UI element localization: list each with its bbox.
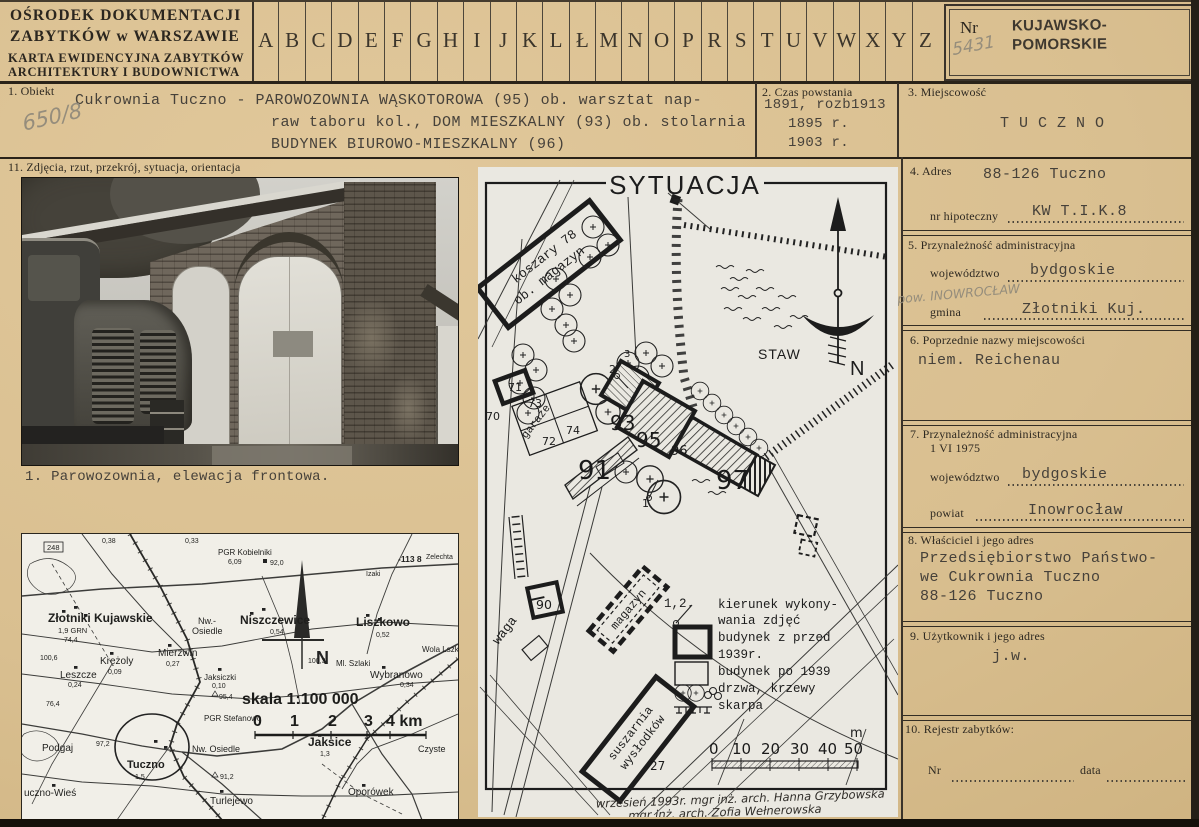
scale-10: 10 <box>732 740 751 758</box>
scan-edge-right <box>1191 0 1199 827</box>
photograph-locomotive-shed <box>22 178 458 465</box>
s8-owner-line2: we Cukrownia Tuczno <box>920 569 1101 586</box>
s10-dotted-line2 <box>1107 780 1185 782</box>
s6-label: 6. Poprzednie nazwy miejscowości <box>910 333 1085 348</box>
s4-address-value: 88-126 Tuczno <box>983 166 1107 183</box>
s5-dotted-line2 <box>984 318 1184 320</box>
legend-line: wania zdjęć <box>718 614 801 628</box>
s7-dotted-line2 <box>976 519 1184 521</box>
scale-50: 50 <box>844 740 863 758</box>
s3-label: 3. Miejscowość <box>908 85 986 100</box>
alphabet-letter: E <box>358 0 384 81</box>
s8-label: 8. Właściciel i jego adres <box>908 533 1034 548</box>
alphabet-letter: F <box>384 0 410 81</box>
spot-height: 1,5 <box>135 774 145 781</box>
place-jaksiczki: Jaksiczki <box>204 673 236 682</box>
building-71: 71 <box>508 381 522 394</box>
s3-town-value: T U C Z N O <box>1000 115 1105 132</box>
north-label: N <box>850 358 864 380</box>
building-90: 90 <box>536 597 552 612</box>
topographic-map: N skala 1:100 000 0 1 2 3 4 km Złotniki … <box>22 534 458 820</box>
place-mierzwin: Mierzwin <box>158 648 197 659</box>
building-70: 70 <box>486 410 500 423</box>
place-ml-szlaki: Ml. Szlaki <box>336 659 370 668</box>
place-podgaj: Podgaj <box>42 743 73 754</box>
s7-f1-label: województwo <box>930 470 1000 485</box>
s5-dotted-line1 <box>1008 280 1184 282</box>
scale-unit: m <box>850 726 863 741</box>
alphabet-letter: O <box>648 0 674 81</box>
spot-height: 100,6 <box>40 655 58 662</box>
s8-owner-line3: 88-126 Tuczno <box>920 588 1044 605</box>
ground-light-patch <box>212 446 352 465</box>
s10-label: 10. Rejestr zabytków: <box>905 722 1014 737</box>
spot-height: 97,2 <box>96 741 110 748</box>
map-scale-2: 2 <box>328 713 337 730</box>
alphabet-letter: P <box>674 0 700 81</box>
s4-field-label: nr hipoteczny <box>930 209 998 224</box>
building-91: 91 <box>578 456 611 486</box>
building-96: 96 <box>671 444 688 459</box>
s7-f1-value: bydgoskie <box>1022 466 1108 483</box>
s11-label: 11. Zdjęcia, rzut, przekrój, sytuacja, o… <box>8 160 241 175</box>
s8-owner-line1: Przedsiębiorstwo Państwo- <box>920 550 1158 567</box>
cab-window <box>28 255 80 301</box>
s10-dotted-line1 <box>952 780 1074 782</box>
spot-height: -113 8 <box>398 554 422 564</box>
alphabet-letter: I <box>463 0 489 81</box>
s4-dotted-line <box>1008 221 1184 223</box>
hood-vent <box>92 328 134 424</box>
s4-s5-separator <box>903 230 1199 236</box>
door-sign <box>273 331 313 357</box>
s7-label: 7. Przynależność administracyjna <box>910 427 1077 442</box>
s4-field-value: KW T.I.K.8 <box>1032 203 1127 220</box>
map-scale-3: 3 <box>364 713 373 730</box>
alphabet-letter: R <box>701 0 727 81</box>
spot-height: 6,09 <box>228 559 242 566</box>
legend-line: drzwa, krzewy <box>718 682 816 696</box>
legend-line: 1939r. <box>718 648 763 662</box>
place-wola: Wola Lszko <box>422 645 458 654</box>
place-tuczno-wies: uczno-Wieś <box>24 788 76 799</box>
s5-label: 5. Przynależność administracyjna <box>908 238 1075 253</box>
alphabet-letter: Y <box>885 0 911 81</box>
alphabet-letter: Ł <box>569 0 595 81</box>
map-scale-4: 4 km <box>386 713 422 730</box>
photo-point-1: 1 <box>642 497 649 510</box>
spot-height: 0,27 <box>166 661 180 668</box>
place-liszkowo: Liszkowo <box>356 615 410 629</box>
shed-door-main-photo <box>238 256 342 460</box>
s6-value: niem. Reichenau <box>918 352 1061 369</box>
card-number-box: Nr 5431 KUJAWSKO- POMORSKIE <box>944 4 1195 81</box>
legend-photo-numbers: 1,2. <box>664 597 694 611</box>
point-3: 3 <box>624 349 630 360</box>
alphabet-letter: Z <box>912 0 938 81</box>
alphabet-letter: H <box>437 0 463 81</box>
door-seam <box>289 257 290 459</box>
map-scale-1: 1 <box>290 713 299 730</box>
s5-s6-separator <box>903 325 1199 331</box>
scan-edge-bottom <box>0 819 1199 827</box>
alphabet-letter: T <box>753 0 779 81</box>
spot-height: 0,09 <box>108 669 122 676</box>
alphabet-letter: S <box>727 0 753 81</box>
scale-0: 0 <box>709 740 719 758</box>
s1-text-line2: raw taboru kol., DOM MIESZKALNY (93) ob.… <box>271 114 746 131</box>
section1-bottom-rule <box>0 157 1199 159</box>
alphabet-letter: G <box>410 0 436 81</box>
road-number: 248 <box>47 543 60 552</box>
spot-height: 95,4 <box>219 694 233 701</box>
heritage-record-card: OŚRODEK DOKUMENTACJI ZABYTKÓW w WARSZAWI… <box>0 0 1199 827</box>
spot-height: 0,24 <box>68 682 82 689</box>
alphabet-letter: A <box>253 0 278 81</box>
spot-height: 76,4 <box>46 701 60 708</box>
legend-line: skarpa <box>718 699 764 713</box>
spot-height: 0,10 <box>212 683 226 690</box>
card-type-line1: KARTA EWIDENCYJNA ZABYTKÓW <box>8 51 244 66</box>
place-leszcze: Leszcze <box>60 670 97 681</box>
scale-30: 30 <box>790 740 809 758</box>
header-bottom-rule <box>0 81 1199 84</box>
s5-f1-label: województwo <box>930 266 1000 281</box>
scale-20: 20 <box>761 740 780 758</box>
s6-s7-separator <box>903 420 1199 426</box>
s10-nr-label: Nr <box>928 763 941 778</box>
building-93: 93 <box>610 411 635 435</box>
pond-label: STAW <box>758 346 801 362</box>
building-74: 74 <box>566 424 580 437</box>
legend-line: budynek po 1939 <box>718 665 831 679</box>
stamp-line2: POMORSKIE <box>1012 35 1107 55</box>
place-tuczno: Tuczno <box>127 759 165 771</box>
building-97: 97 <box>716 466 749 496</box>
spot-height: 91,2 <box>220 774 234 781</box>
spot-height: 92,0 <box>270 560 284 567</box>
spot-height: 100,3 <box>308 658 326 665</box>
s2-s3-divider <box>897 83 899 157</box>
s1-label: 1. Obiekt <box>8 84 54 99</box>
place-pgr-stefanowo: PGR Stefanowo <box>204 714 262 723</box>
legend-line: budynek z przed <box>718 631 831 645</box>
place-turlejewo: Turlejewo <box>210 796 253 807</box>
s7-f2-label: powiat <box>930 506 964 521</box>
place-izaki: Izaki <box>366 571 381 578</box>
s5-f2-value: Złotniki Kuj. <box>1022 301 1146 318</box>
alphabet-letter: B <box>278 0 304 81</box>
map-scale-label: skala 1:100 000 <box>242 691 359 708</box>
building-72: 72 <box>542 435 556 448</box>
s1-text-line3: BUDYNEK BIUROWO-MIESZKALNY (96) <box>271 136 566 153</box>
alphabet-letter: U <box>780 0 806 81</box>
alphabet-letter: K <box>516 0 542 81</box>
place-grn: 1,9 GRN <box>58 626 87 635</box>
alphabet-letter: N <box>621 0 647 81</box>
spot-height: 1,3 <box>320 751 330 758</box>
s4-label: 4. Adres <box>910 164 952 179</box>
alphabet-index: A B C D E F G H I J K L Ł M N O P R S T … <box>253 0 938 81</box>
stamp-line1: KUJAWSKO- <box>1012 17 1107 37</box>
alphabet-letter: D <box>331 0 357 81</box>
s7-label2: 1 VI 1975 <box>930 441 980 456</box>
spot-height: 74,4 <box>64 637 78 644</box>
brick-pillar-photo <box>344 182 436 465</box>
s2-date1: 1891, rozb1913 <box>764 97 886 113</box>
spot-height: 0,34 <box>400 682 414 689</box>
alphabet-letter: L <box>542 0 568 81</box>
spot-height: 0,33 <box>185 538 199 545</box>
spot-height: 0,38 <box>102 538 116 545</box>
s10-data-label: data <box>1080 763 1101 778</box>
org-name-line1: OŚRODEK DOKUMENTACJI <box>10 7 241 25</box>
s2-date3: 1903 r. <box>788 135 849 151</box>
archive-number-handwritten: 650/8 <box>21 98 83 135</box>
place-wybranowo: Wybranowo <box>370 670 423 681</box>
legend-line: kierunek wykony- <box>718 598 838 612</box>
s8-s9-separator <box>903 621 1199 627</box>
s7-dotted-line1 <box>1008 484 1184 486</box>
spot-height: 0,52 <box>376 632 390 639</box>
s9-label: 9. Użytkownik i jego adres <box>910 629 1045 644</box>
top-edge-line <box>0 0 1199 2</box>
s5-f1-value: bydgoskie <box>1030 262 1116 279</box>
voivodeship-stamp: KUJAWSKO- POMORSKIE <box>1012 17 1108 55</box>
plan-title: SYTUACJA <box>609 170 761 200</box>
spot-height: 0,54 <box>270 629 284 636</box>
s7-f2-value: Inowrocław <box>1028 502 1123 519</box>
powiat-pencil-note: pow. INOWROCŁAW <box>897 281 1021 307</box>
s5-f2-label: gmina <box>930 305 961 320</box>
place-nw-osiedle: Osiedle <box>192 626 223 636</box>
alphabet-letter: W <box>833 0 859 81</box>
s1-text-line1: Cukrownia Tuczno - PAROWOZOWNIA WĄSKOTOR… <box>75 92 702 109</box>
alphabet-letter: J <box>490 0 516 81</box>
scale-40: 40 <box>818 740 837 758</box>
place-zlotniki: Złotniki Kujawskie <box>48 611 153 625</box>
alphabet-letter: V <box>806 0 832 81</box>
alphabet-letter: M <box>595 0 621 81</box>
place-pgr-kobielniki: PGR Kobielniki <box>218 548 272 557</box>
place-zelechta: Zelechta <box>426 554 453 561</box>
place-nw-osiedle: Nw.- <box>198 616 216 626</box>
place-jaksice: Jaksice <box>308 735 352 749</box>
org-name-line2: ZABYTKÓW w WARSZAWIE <box>10 28 240 46</box>
site-plan-drawing: SYTUACJA koszary 78 ob. magazyn <box>478 167 898 817</box>
alphabet-letter: X <box>859 0 885 81</box>
s2-date2: 1895 r. <box>788 116 849 132</box>
place-krezoly: Krężoly <box>100 656 133 667</box>
card-type-line2: ARCHITEKTURY I BUDOWNICTWA <box>8 65 240 80</box>
main-column-divider <box>901 157 903 821</box>
s1-s2-divider <box>755 83 757 157</box>
place-niszczewice: Niszczewice <box>240 613 310 627</box>
s9-value: j.w. <box>992 648 1030 665</box>
place-czyste: Czyste <box>418 744 446 754</box>
photo-caption: 1. Parowozownia, elewacja frontowa. <box>25 469 330 485</box>
building-95: 95 <box>636 428 661 452</box>
alphabet-letter: C <box>305 0 331 81</box>
s9-s10-separator <box>903 715 1199 721</box>
building-27: 27 <box>650 759 665 773</box>
place-nw-osiedle2: Nw. Osiedle <box>192 744 240 754</box>
place-oporowek: Oporówek <box>348 787 395 798</box>
